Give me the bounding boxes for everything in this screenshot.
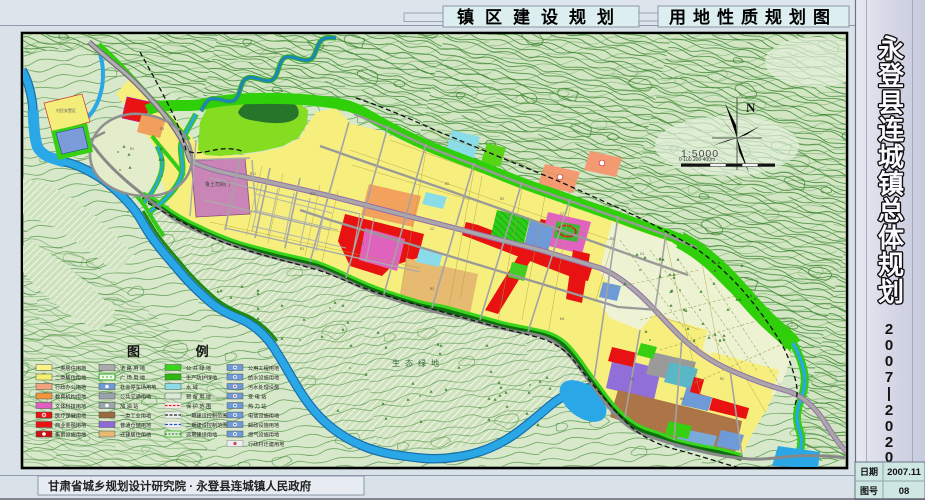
svg-text:日期: 日期 — [860, 466, 878, 477]
svg-text:热 力 站: 热 力 站 — [248, 402, 266, 410]
svg-text:迁建居住用地: 迁建居住用地 — [120, 430, 151, 438]
svg-text:镇: 镇 — [878, 169, 904, 199]
svg-text:邮政设施用地: 邮政设施用地 — [248, 421, 279, 429]
svg-text:行政办公用地: 行政办公用地 — [55, 383, 86, 391]
svg-text:变 电 站: 变 电 站 — [248, 392, 266, 400]
svg-text:一期建设控制范围: 一期建设控制范围 — [186, 411, 228, 419]
svg-text:二期建设控制范围: 二期建设控制范围 — [186, 421, 228, 429]
svg-text:总: 总 — [878, 196, 904, 226]
svg-text:村民安置区: 村民安置区 — [56, 107, 76, 113]
svg-text:加 油 站: 加 油 站 — [120, 402, 138, 410]
svg-text:城: 城 — [878, 142, 904, 172]
svg-text:0: 0 — [885, 337, 893, 354]
svg-text:2007.11: 2007.11 — [887, 467, 922, 478]
svg-text:图号: 图号 — [860, 486, 878, 496]
svg-text:县: 县 — [878, 88, 904, 118]
svg-text:甘肃省城乡规划设计研究院 · 永登县连城镇人民政府: 甘肃省城乡规划设计研究院 · 永登县连城镇人民政府 — [48, 479, 312, 493]
svg-text:0 100 200 4: 0 100 200 400m — [679, 157, 715, 163]
svg-text:保 护 范 围: 保 护 范 围 — [186, 402, 211, 410]
svg-text:规: 规 — [878, 250, 904, 280]
svg-text:图 例: 图 例 — [127, 344, 235, 359]
svg-text:道 路 用 地: 道 路 用 地 — [120, 364, 145, 372]
svg-text:生产防护绿地: 生产防护绿地 — [186, 373, 217, 381]
svg-text:C2: C2 — [430, 227, 434, 231]
svg-text:2: 2 — [885, 321, 893, 338]
svg-text:预 留 用 地: 预 留 用 地 — [186, 392, 211, 400]
svg-text:普通仓储用地: 普通仓储用地 — [120, 421, 151, 429]
svg-text:08: 08 — [899, 486, 910, 497]
svg-text:给水设施用地: 给水设施用地 — [248, 373, 279, 381]
svg-text:水 域: 水 域 — [186, 383, 198, 391]
svg-text:R1: R1 — [300, 247, 304, 251]
svg-text:R2: R2 — [610, 237, 614, 241]
svg-text:行政村迁建用地: 行政村迁建用地 — [248, 440, 284, 448]
svg-text:M1: M1 — [560, 317, 565, 321]
svg-text:R2: R2 — [500, 197, 504, 201]
svg-text:2: 2 — [885, 402, 893, 419]
svg-text:连: 连 — [878, 115, 905, 145]
svg-text:W1: W1 — [680, 397, 685, 401]
svg-text:教育机构用地: 教育机构用地 — [55, 392, 86, 400]
svg-text:一类工业用地: 一类工业用地 — [120, 411, 151, 419]
svg-text:划: 划 — [878, 277, 904, 307]
svg-text:体: 体 — [878, 223, 905, 253]
svg-text:|: | — [887, 385, 891, 402]
svg-text:用地性质规划图: 用地性质规划图 — [669, 7, 837, 27]
svg-text:N: N — [746, 100, 756, 115]
svg-text:远期建设用地: 远期建设用地 — [186, 430, 217, 438]
svg-text:医疗保健用地: 医疗保健用地 — [55, 411, 86, 419]
svg-text:0: 0 — [885, 418, 893, 435]
svg-text:0: 0 — [885, 353, 893, 370]
svg-text:R22: R22 — [310, 192, 316, 196]
svg-text:C2: C2 — [560, 212, 564, 216]
svg-text:R2: R2 — [445, 182, 449, 186]
svg-text:M1: M1 — [630, 377, 635, 381]
svg-text:R1: R1 — [130, 147, 134, 151]
svg-text:一类居住用地: 一类居住用地 — [55, 364, 86, 372]
svg-text:C1: C1 — [360, 242, 364, 246]
svg-text:社会停车场用地: 社会停车场用地 — [120, 383, 156, 391]
svg-text:公 共 绿 地: 公 共 绿 地 — [186, 364, 211, 372]
svg-text:7: 7 — [885, 369, 893, 386]
svg-text:广 场 用 地: 广 场 用 地 — [120, 373, 145, 381]
svg-text:R2: R2 — [720, 377, 724, 381]
svg-text:电信设施用地: 电信设施用地 — [248, 411, 279, 419]
svg-text:商业金融用地: 商业金融用地 — [55, 421, 86, 429]
svg-text:镇区建设规划: 镇区建设规划 — [457, 7, 625, 27]
svg-text:二类居住用地: 二类居住用地 — [55, 373, 86, 381]
svg-text:R1: R1 — [160, 127, 164, 131]
svg-text:集贸设施用地: 集贸设施用地 — [55, 430, 86, 438]
svg-text:永: 永 — [878, 34, 904, 64]
svg-text:文体科技用地: 文体科技用地 — [55, 402, 86, 410]
svg-text:公共交通用地: 公共交通用地 — [120, 392, 151, 400]
svg-text:G1: G1 — [640, 252, 644, 256]
svg-text:生态绿地: 生态绿地 — [392, 358, 444, 368]
svg-text:燃气设施用地: 燃气设施用地 — [248, 430, 279, 438]
svg-text:R2: R2 — [430, 287, 434, 291]
svg-text:R2: R2 — [500, 297, 504, 301]
svg-text:登: 登 — [877, 61, 905, 91]
svg-text:公用工程用地: 公用工程用地 — [248, 364, 279, 372]
svg-text:污水处理设施: 污水处理设施 — [248, 383, 279, 391]
